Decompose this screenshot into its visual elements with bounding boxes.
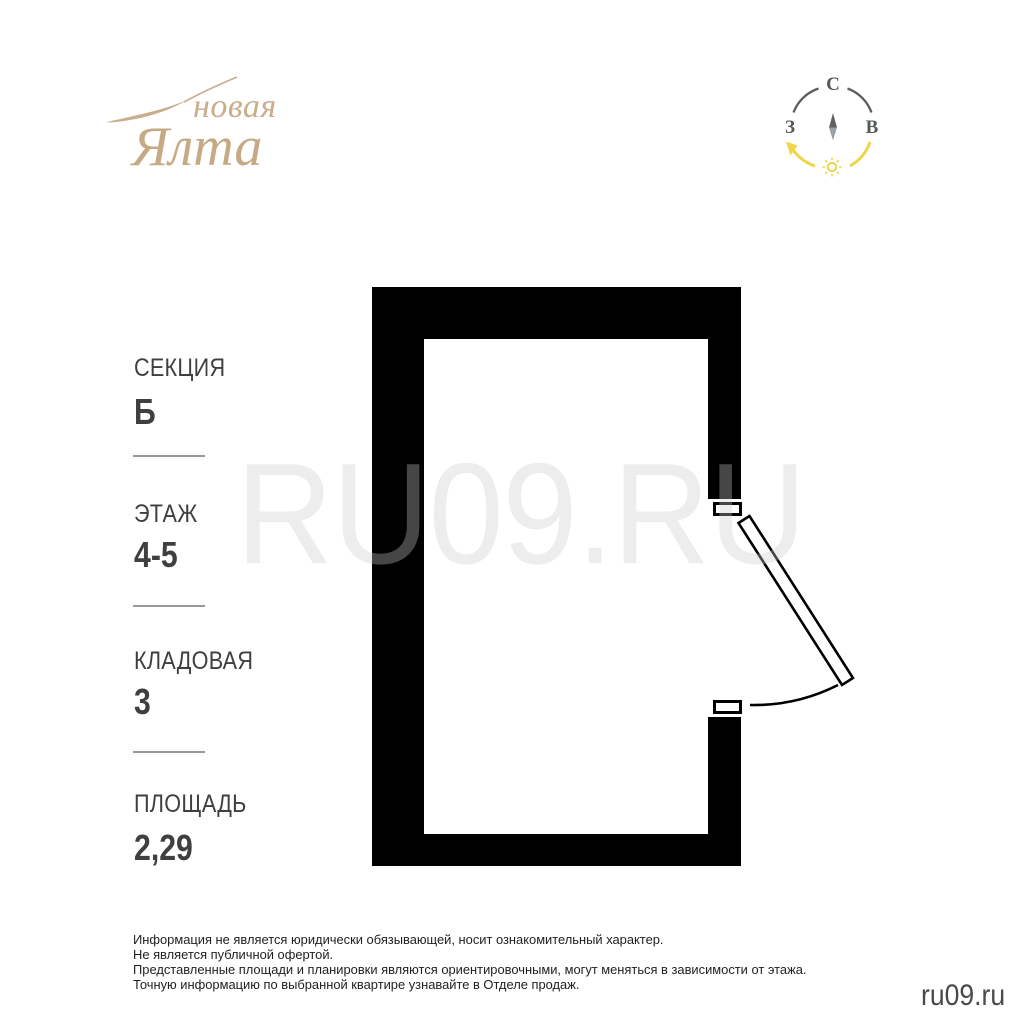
svg-text:З: З — [785, 117, 795, 138]
svg-text:В: В — [866, 117, 879, 138]
svg-text:С: С — [826, 74, 840, 95]
svg-text:Ялта: Ялта — [130, 116, 262, 178]
